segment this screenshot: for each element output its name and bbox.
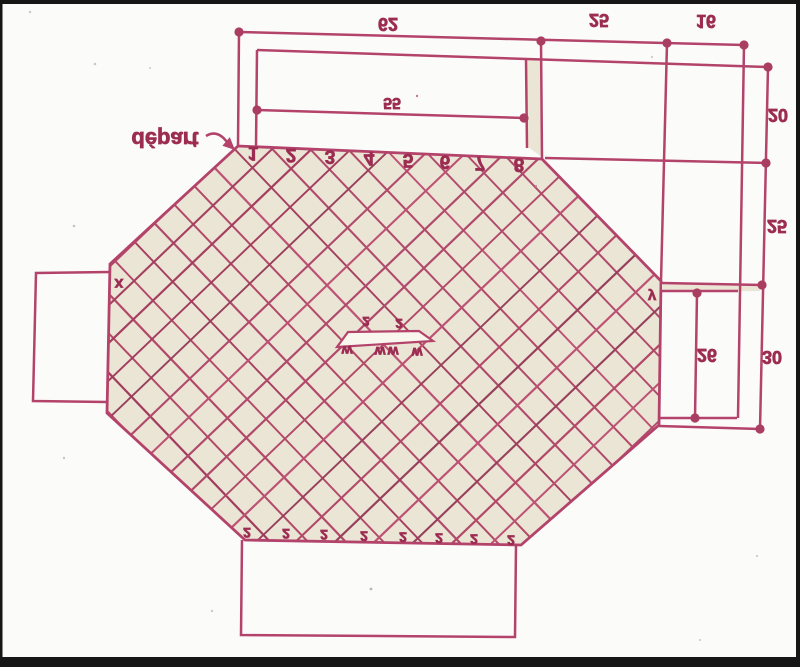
svg-text:20: 20: [768, 105, 788, 125]
svg-text:2: 2: [282, 526, 290, 542]
svg-text:x: x: [115, 275, 124, 292]
svg-text:2: 2: [395, 316, 402, 331]
svg-text:2: 2: [243, 525, 251, 541]
svg-text:5: 5: [403, 149, 414, 170]
svg-text:1: 1: [248, 142, 259, 163]
svg-text:2: 2: [435, 530, 443, 546]
svg-text:w: w: [411, 345, 423, 361]
svg-text:62: 62: [378, 14, 398, 34]
svg-text:30: 30: [762, 347, 782, 367]
svg-text:2: 2: [362, 314, 369, 329]
svg-text:7: 7: [475, 152, 486, 173]
svg-text:y: y: [648, 288, 657, 305]
svg-text:4: 4: [364, 147, 375, 168]
svg-text:w: w: [387, 344, 399, 360]
svg-text:6: 6: [440, 150, 451, 171]
svg-text:2: 2: [286, 144, 297, 165]
svg-text:w: w: [374, 344, 386, 360]
svg-text:16: 16: [696, 11, 716, 31]
svg-text:55: 55: [383, 94, 401, 111]
svg-text:2: 2: [470, 531, 478, 547]
svg-text:w: w: [341, 343, 353, 359]
svg-text:départ: départ: [131, 127, 199, 152]
svg-text:2: 2: [320, 527, 328, 543]
svg-text:26: 26: [697, 345, 717, 365]
svg-text:2: 2: [360, 528, 368, 544]
svg-text:8: 8: [514, 153, 525, 174]
svg-text:3: 3: [325, 145, 336, 166]
svg-text:2: 2: [399, 529, 407, 545]
svg-text:2: 2: [507, 532, 515, 548]
svg-text:25: 25: [589, 10, 609, 30]
svg-text:25: 25: [767, 216, 787, 236]
